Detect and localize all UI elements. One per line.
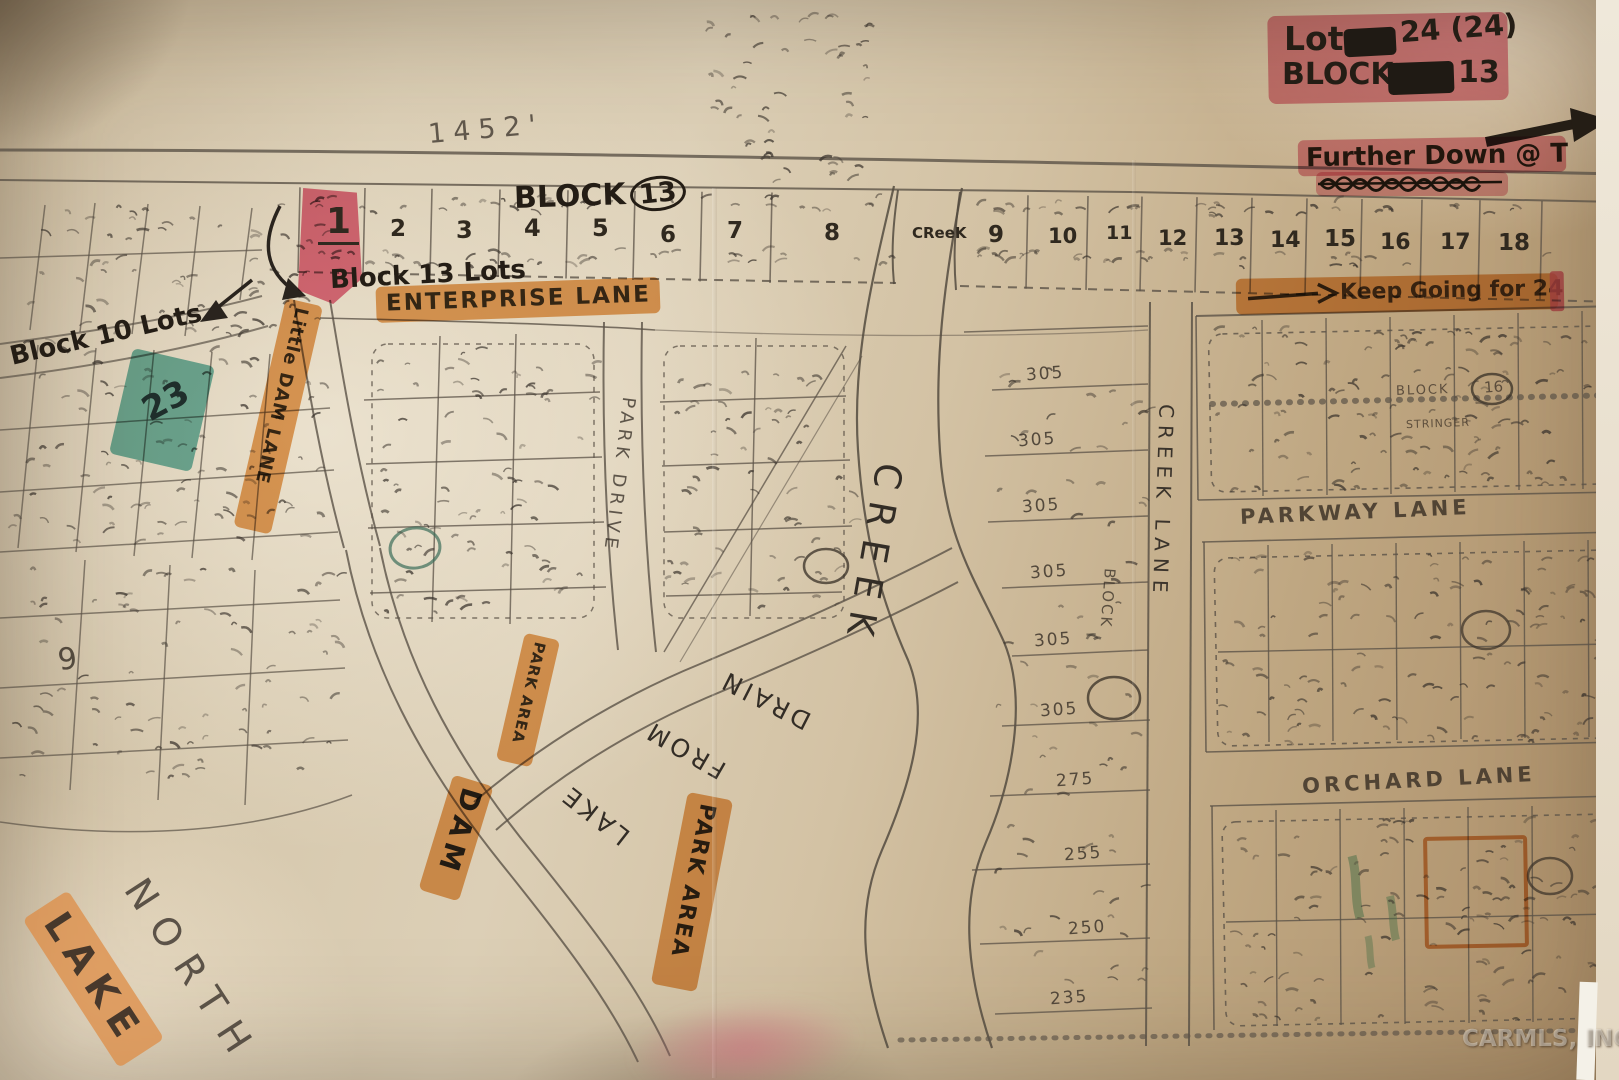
creek-gap-label: CReeK	[912, 226, 967, 241]
dim-4: 305	[1029, 563, 1069, 583]
lot-number-7: 7	[727, 220, 743, 243]
dim-6: 305	[1039, 701, 1079, 721]
lot-number-8: 8	[824, 222, 840, 245]
further-down-highlight: Further Down @ T	[1298, 136, 1567, 177]
lot-number-16: 16	[1380, 232, 1411, 254]
paper-crease-left	[712, 188, 717, 1078]
lot-number-13: 13	[1214, 228, 1245, 250]
legend-lot-label: Lot	[1284, 22, 1343, 55]
block-redaction-blob	[1387, 61, 1454, 95]
block13-heading: BLOCK	[514, 180, 627, 214]
lot-number-14: 14	[1270, 230, 1301, 252]
right-block-number: 16	[1484, 379, 1504, 395]
lot-number-17: 17	[1440, 232, 1471, 254]
dim-7: 275	[1055, 771, 1095, 791]
legend-block-label: BLOCK	[1282, 60, 1394, 90]
dim-2: 305	[1017, 431, 1057, 451]
dim-9: 250	[1067, 919, 1107, 939]
paper-crease-right	[1132, 160, 1136, 720]
legend-block-value: 13	[1458, 58, 1500, 88]
keep-going-highlight: Keep Going for 24	[1236, 273, 1559, 315]
lot-number-10: 10	[1048, 226, 1077, 247]
lot-redaction-blob	[1343, 27, 1396, 58]
scribble-out-mark	[1316, 172, 1508, 196]
orange-lot-outline	[1423, 835, 1529, 949]
dim-3: 305	[1021, 497, 1061, 517]
dim-10: 235	[1049, 989, 1089, 1009]
dam-road-lines	[346, 548, 670, 1062]
scratched-out-highlight	[1316, 172, 1508, 196]
further-down-label: Further Down @ T	[1306, 141, 1568, 172]
lot-number-18: 18	[1498, 232, 1530, 255]
stringer-label: STRINGER	[1406, 417, 1470, 430]
long-lot-lines	[964, 326, 1152, 1014]
block-b-lines	[660, 338, 862, 662]
dim-1: 305	[1025, 365, 1065, 385]
circled-marks	[387, 374, 1572, 968]
lot-number-1: 1	[318, 204, 359, 245]
lot-number-12: 12	[1158, 228, 1187, 249]
plat-map-photo: ENTERPRISE LANE Little DAM LANE Keep Goi…	[0, 0, 1619, 1080]
photo-edge-strip	[1596, 0, 1619, 1080]
dim-5: 305	[1033, 631, 1073, 651]
pink-end-mark	[1550, 271, 1565, 311]
lot-number-11: 11	[1106, 224, 1132, 243]
watermark: CARMLS, INC	[1462, 1028, 1619, 1051]
lot-number-6: 6	[660, 224, 676, 247]
lot-number-3: 3	[456, 218, 473, 242]
dim-8: 255	[1063, 845, 1103, 865]
lot-number-4: 4	[524, 216, 541, 240]
legend-lot-value: 24 (24)	[1399, 10, 1518, 47]
keep-going-arrow-icon	[1242, 277, 1343, 315]
lot-number-5: 5	[592, 216, 609, 240]
lot-number-15: 15	[1324, 228, 1356, 251]
right-block-label: BLOCK	[1396, 383, 1450, 398]
left-lot-number-9: 9	[56, 644, 79, 676]
keep-going-label: Keep Going for 24	[1340, 278, 1564, 304]
lot-number-9: 9	[988, 224, 1004, 247]
lot-number-2: 2	[390, 218, 406, 241]
